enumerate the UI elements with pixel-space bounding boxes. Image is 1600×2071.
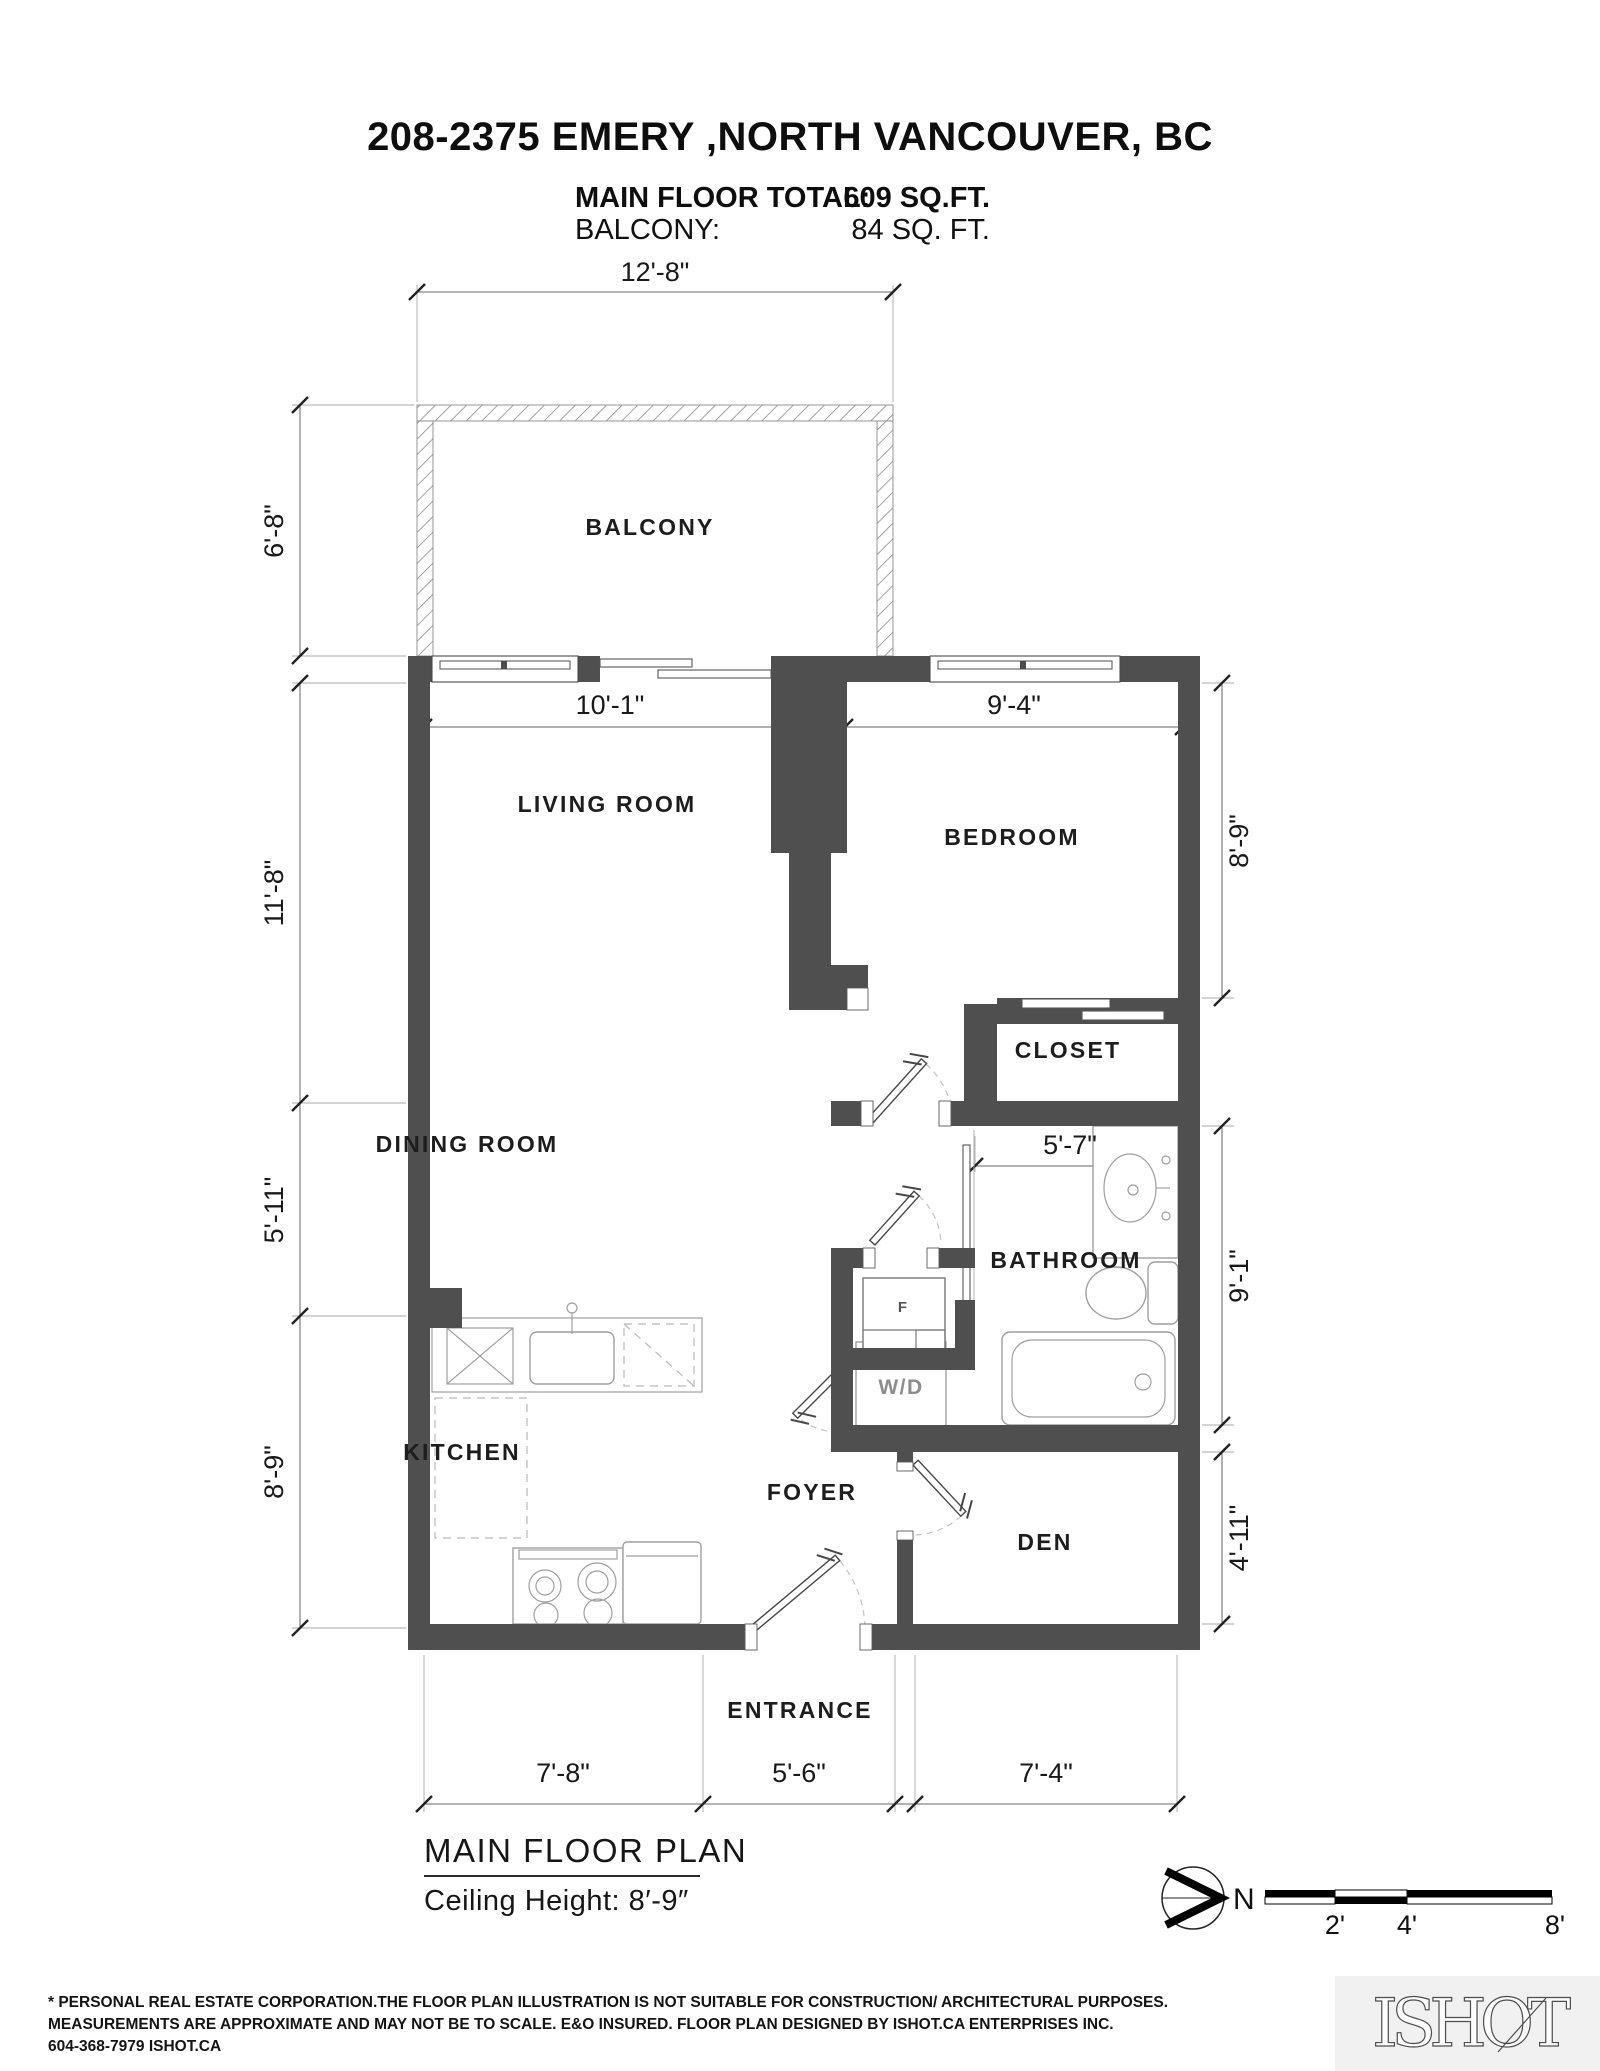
label-furnace: F bbox=[898, 1299, 908, 1316]
dim-bathroom-width: 5'-7" bbox=[1043, 1130, 1097, 1160]
den-door bbox=[913, 1452, 979, 1535]
dim-entrance-width: 5'-6" bbox=[772, 1758, 826, 1788]
living-room-window bbox=[432, 656, 578, 682]
upper-cabinet-outline bbox=[435, 1398, 527, 1538]
dim-den-width: 7'-4" bbox=[1019, 1758, 1073, 1788]
bathtub bbox=[1002, 1332, 1175, 1425]
room-label-foyer: FOYER bbox=[767, 1479, 857, 1505]
north-arrow-icon bbox=[1162, 1867, 1224, 1929]
room-label-den: DEN bbox=[1017, 1529, 1072, 1555]
room-label-balcony: BALCONY bbox=[585, 514, 714, 540]
dim-kitchen-width: 7'-8" bbox=[536, 1758, 590, 1788]
entrance-door bbox=[745, 1542, 865, 1630]
dim-kitchen-height: 8'-9" bbox=[259, 1445, 289, 1499]
bedroom-window bbox=[930, 656, 1120, 682]
scale-2ft: 2' bbox=[1325, 1910, 1345, 1940]
main-floor-total-label: MAIN FLOOR TOTAL: bbox=[575, 182, 870, 214]
floor-plan-page: 208-2375 EMERY ,NORTH VANCOUVER, BC MAIN… bbox=[0, 0, 1600, 2071]
kitchen-sink-icon bbox=[530, 1332, 614, 1384]
main-floor-total-value: 609 SQ.FT. bbox=[843, 182, 990, 214]
room-label-bathroom: BATHROOM bbox=[990, 1247, 1141, 1273]
dim-living-height: 11'-8" bbox=[259, 860, 289, 927]
room-label-living-room: LIVING ROOM bbox=[518, 791, 697, 817]
pocket-door bbox=[963, 1130, 974, 1303]
dim-living-width: 10'-1" bbox=[576, 690, 645, 720]
kitchen-counter bbox=[432, 1303, 702, 1538]
dim-balcony-depth: 6'-8" bbox=[259, 504, 289, 558]
stove bbox=[513, 1548, 623, 1627]
ishot-logo-text: ISHOT bbox=[1372, 1985, 1571, 2062]
scale-4ft: 4' bbox=[1397, 1910, 1417, 1940]
disclaimer-line-1: * PERSONAL REAL ESTATE CORPORATION.THE F… bbox=[48, 1994, 1168, 2011]
floor-plan-canvas: 208-2375 EMERY ,NORTH VANCOUVER, BC MAIN… bbox=[0, 0, 1600, 2071]
page-title: 208-2375 EMERY ,NORTH VANCOUVER, BC bbox=[367, 115, 1213, 159]
dim-bedroom-height: 8'-9" bbox=[1224, 814, 1254, 868]
dim-balcony-width: 12'-8" bbox=[621, 257, 690, 287]
counter-end bbox=[623, 1542, 701, 1624]
balcony-area-label: BALCONY: bbox=[575, 214, 720, 246]
disclaimer-line-3: 604-368-7979 ISHOT.CA bbox=[48, 2038, 221, 2055]
plan-name: MAIN FLOOR PLAN bbox=[424, 1832, 747, 1869]
room-label-closet: CLOSET bbox=[1015, 1037, 1121, 1063]
dim-bathroom-height: 9'-1" bbox=[1224, 1249, 1254, 1303]
room-label-bedroom: BEDROOM bbox=[944, 824, 1080, 850]
north-label: N bbox=[1233, 1883, 1255, 1916]
ishot-logo: ISHOT bbox=[1335, 1976, 1600, 2071]
balcony-sliding-door bbox=[600, 659, 771, 678]
label-washer-dryer: W/D bbox=[878, 1376, 923, 1399]
faucet-icon bbox=[567, 1303, 577, 1313]
scale-bar bbox=[1265, 1890, 1552, 1904]
room-label-entrance: ENTRANCE bbox=[727, 1697, 872, 1723]
dim-den-height: 4'-11" bbox=[1224, 1505, 1254, 1572]
room-label-dining-room: DINING ROOM bbox=[376, 1131, 559, 1157]
balcony-area-value: 84 SQ. FT. bbox=[851, 214, 990, 246]
room-label-kitchen: KITCHEN bbox=[403, 1439, 521, 1465]
hall-closet-door bbox=[861, 1179, 941, 1245]
dim-bedroom-width: 9'-4" bbox=[987, 690, 1041, 720]
dim-dining-height: 5'-11" bbox=[259, 1177, 289, 1244]
scale-8ft: 8' bbox=[1545, 1910, 1565, 1940]
vanity-sink bbox=[1093, 1126, 1178, 1258]
ceiling-height: Ceiling Height: 8′-9″ bbox=[424, 1885, 689, 1917]
disclaimer-line-2: MEASUREMENTS ARE APPROXIMATE AND MAY NOT… bbox=[48, 2016, 1114, 2033]
